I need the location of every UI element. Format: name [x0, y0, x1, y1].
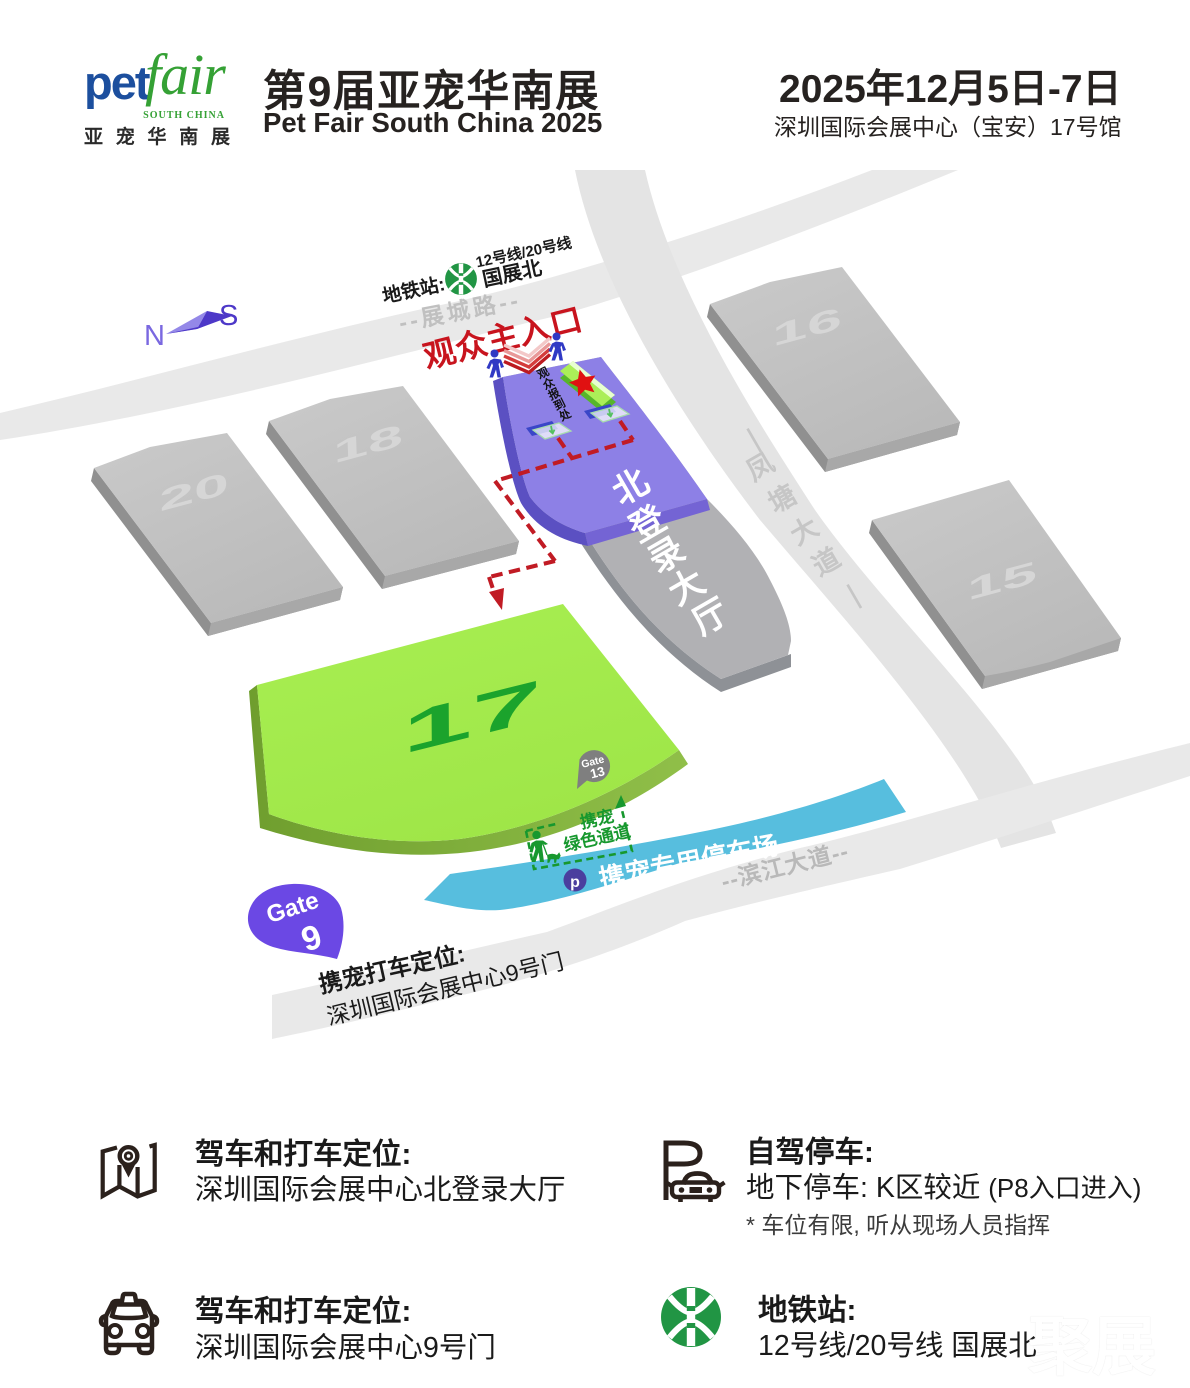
svg-text:S: S: [219, 300, 238, 332]
svg-text:p: p: [570, 874, 580, 891]
svg-text:N: N: [144, 320, 165, 352]
